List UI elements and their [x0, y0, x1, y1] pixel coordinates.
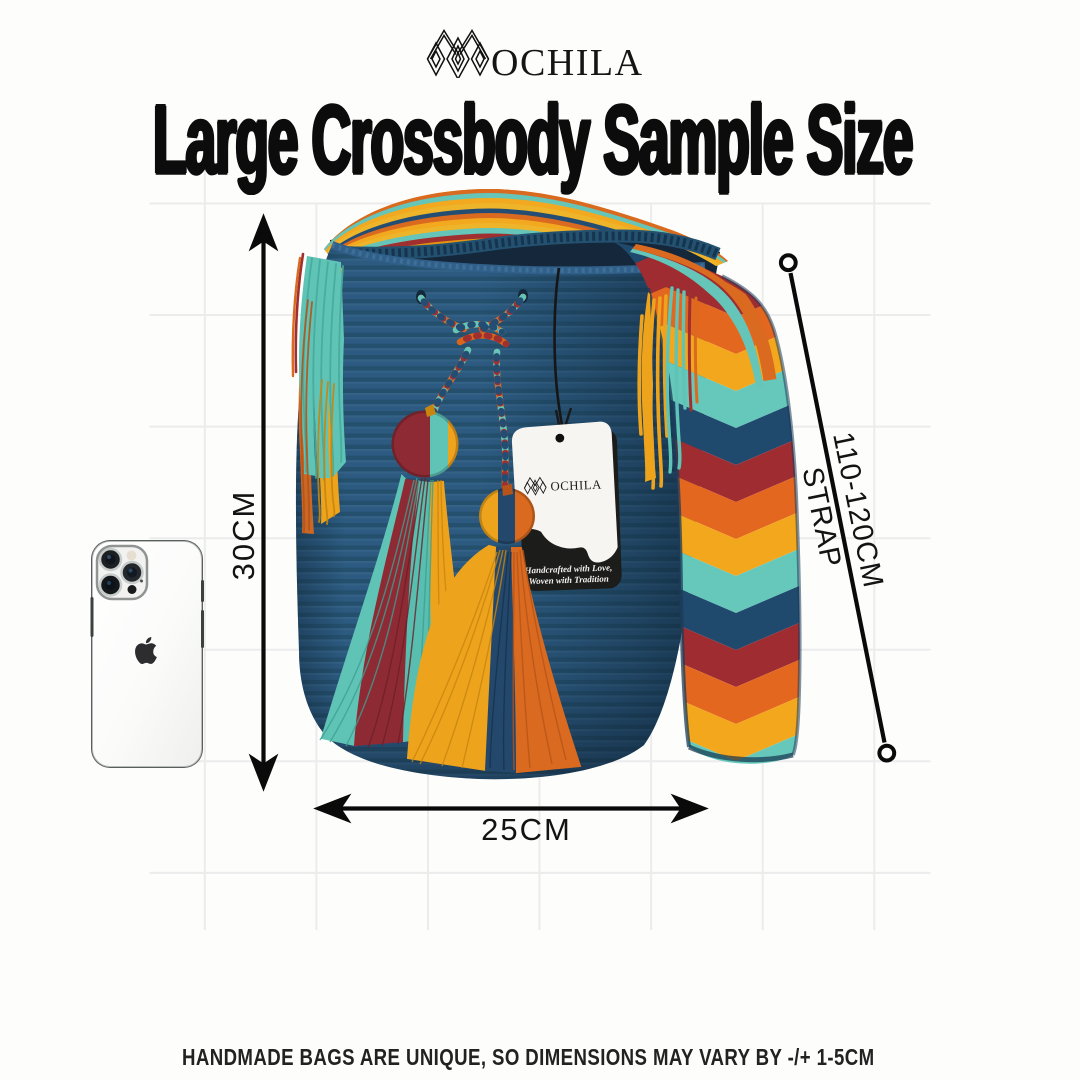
svg-text:OCHILA: OCHILA — [550, 478, 602, 494]
